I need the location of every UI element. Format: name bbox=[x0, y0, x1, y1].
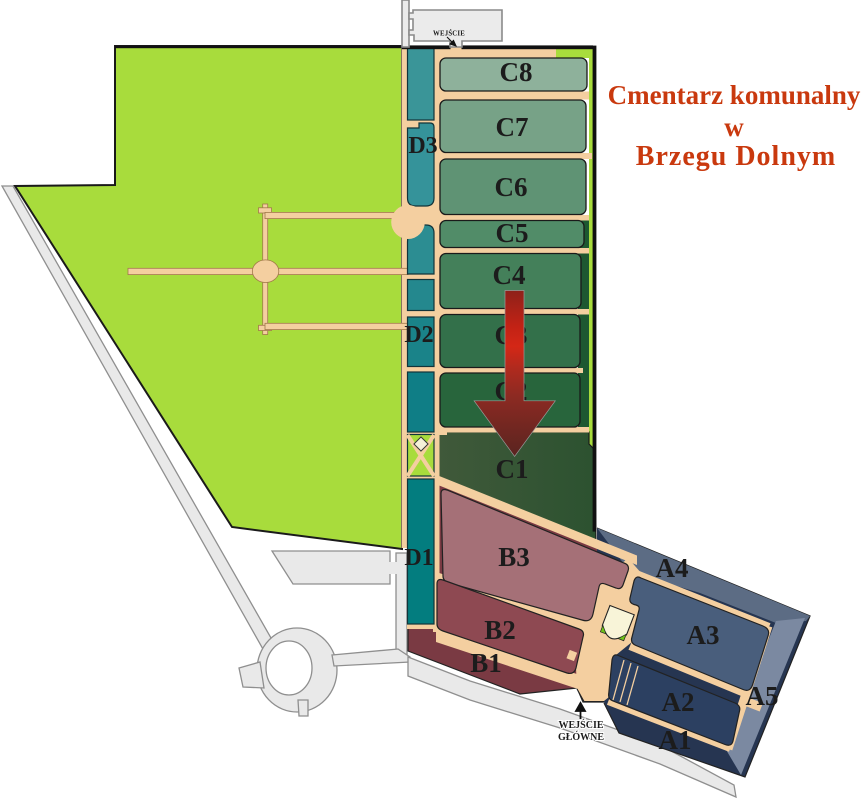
svg-text:B3: B3 bbox=[498, 542, 530, 572]
svg-text:A5: A5 bbox=[746, 681, 779, 711]
svg-text:D2: D2 bbox=[404, 322, 433, 348]
svg-text:WEJŚCIE: WEJŚCIE bbox=[433, 30, 465, 38]
svg-text:GŁÓWNE: GŁÓWNE bbox=[558, 731, 604, 743]
svg-text:C1: C1 bbox=[496, 454, 529, 484]
svg-text:B2: B2 bbox=[484, 615, 516, 645]
svg-text:C4: C4 bbox=[493, 260, 526, 290]
svg-text:WEJŚCIE: WEJŚCIE bbox=[558, 719, 603, 731]
svg-text:A3: A3 bbox=[687, 620, 720, 650]
svg-text:A2: A2 bbox=[662, 687, 695, 717]
svg-text:Cmentarz komunalny: Cmentarz komunalny bbox=[608, 80, 861, 110]
svg-text:C8: C8 bbox=[500, 57, 533, 87]
svg-text:C5: C5 bbox=[496, 218, 529, 248]
svg-text:Brzegu Dolnym: Brzegu Dolnym bbox=[636, 141, 836, 172]
svg-text:B1: B1 bbox=[470, 648, 502, 678]
svg-text:D3: D3 bbox=[408, 133, 437, 159]
svg-text:C7: C7 bbox=[496, 112, 529, 142]
svg-text:w: w bbox=[724, 112, 744, 142]
svg-text:C6: C6 bbox=[495, 172, 528, 202]
svg-text:A4: A4 bbox=[656, 553, 689, 583]
svg-text:D1: D1 bbox=[404, 545, 433, 571]
svg-text:A1: A1 bbox=[659, 725, 692, 755]
